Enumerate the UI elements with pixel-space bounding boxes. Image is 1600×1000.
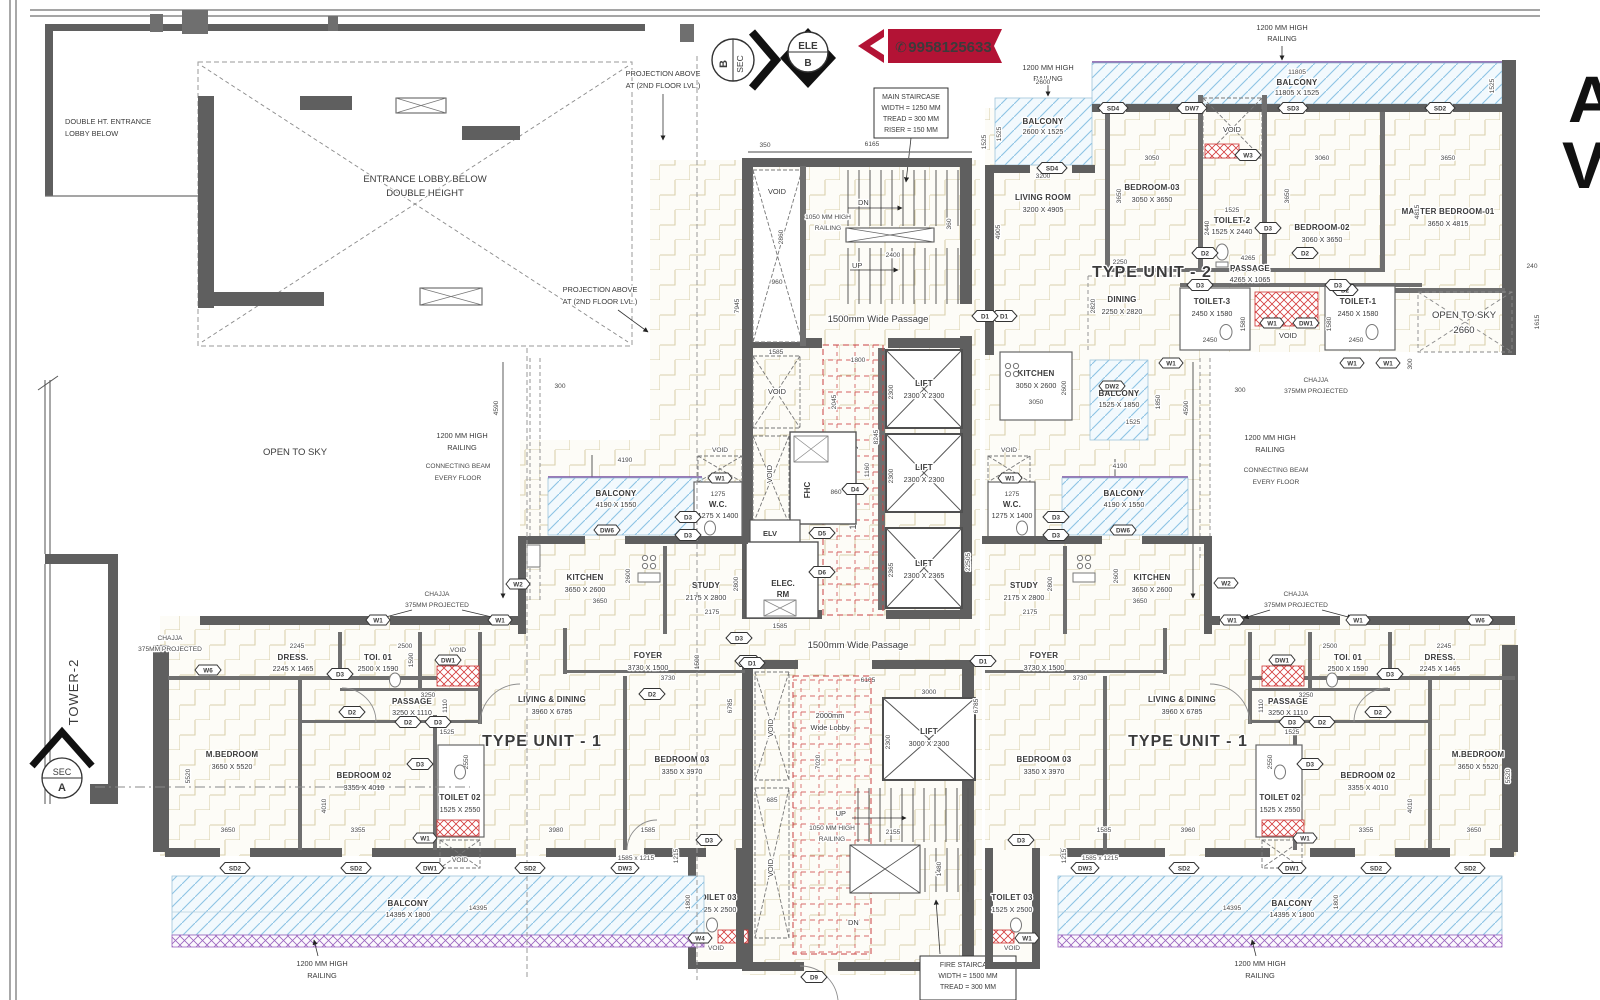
double-ht-label-2: LOBBY BELOW	[65, 129, 118, 138]
svg-text:1200 MM HIGH: 1200 MM HIGH	[436, 431, 487, 440]
svg-text:2660: 2660	[1453, 325, 1474, 336]
svg-text:2175 X 2800: 2175 X 2800	[1004, 593, 1045, 602]
svg-text:14395 X 1800: 14395 X 1800	[386, 910, 431, 919]
svg-text:SEC: SEC	[53, 767, 72, 777]
svg-text:VOID: VOID	[768, 387, 786, 396]
elevation-marker-b: ELE B	[780, 28, 836, 88]
svg-text:3650: 3650	[1441, 155, 1456, 162]
svg-text:DW6: DW6	[1116, 527, 1130, 534]
double-ht-label-1: DOUBLE HT. ENTRANCE	[65, 117, 151, 126]
svg-text:2600: 2600	[625, 568, 632, 583]
svg-text:D5: D5	[818, 530, 827, 537]
svg-text:1525: 1525	[996, 126, 1003, 141]
svg-text:3050 X 2600: 3050 X 2600	[1016, 381, 1057, 390]
svg-text:22505: 22505	[965, 553, 972, 572]
elec-rm-label-1: ELEC.	[771, 579, 795, 588]
svg-text:5520: 5520	[1505, 768, 1512, 783]
svg-text:D3: D3	[1386, 671, 1395, 678]
svg-text:W6: W6	[203, 667, 213, 674]
svg-text:W2: W2	[513, 581, 523, 588]
svg-text:685: 685	[766, 797, 777, 804]
svg-text:LIFT: LIFT	[915, 559, 933, 568]
passage-top-label: 1500mm Wide Passage	[828, 314, 929, 325]
svg-text:4590: 4590	[1183, 400, 1190, 415]
svg-text:7020: 7020	[815, 754, 822, 769]
svg-text:3960 X 6785: 3960 X 6785	[532, 707, 573, 716]
svg-text:TOI. 01: TOI. 01	[364, 653, 392, 662]
svg-text:1215: 1215	[673, 848, 680, 863]
svg-text:3730: 3730	[1073, 675, 1088, 682]
svg-text:2860: 2860	[778, 229, 785, 244]
svg-text:W1: W1	[373, 617, 383, 624]
svg-text:1050 MM HIGH: 1050 MM HIGH	[805, 214, 851, 221]
svg-text:DINING: DINING	[1107, 295, 1136, 304]
svg-text:3355: 3355	[1359, 827, 1374, 834]
svg-text:VOID: VOID	[766, 859, 775, 877]
svg-text:2440: 2440	[1204, 220, 1211, 235]
svg-text:375MM PROJECTED: 375MM PROJECTED	[405, 602, 469, 609]
svg-text:SD4: SD4	[1107, 105, 1120, 112]
svg-text:3650: 3650	[1133, 598, 1148, 605]
svg-text:RAILING: RAILING	[815, 225, 841, 232]
svg-text:3650 X 5520: 3650 X 5520	[1458, 762, 1499, 771]
svg-text:4905: 4905	[995, 224, 1002, 239]
svg-text:1585: 1585	[769, 349, 784, 356]
svg-text:2245: 2245	[290, 643, 305, 650]
tower2-label: TOWER-2	[66, 659, 81, 726]
svg-text:TOILET 03: TOILET 03	[991, 893, 1033, 902]
open-to-sky-right: OPEN TO SKY	[1432, 310, 1497, 321]
svg-text:1585: 1585	[641, 827, 656, 834]
svg-text:3650: 3650	[221, 827, 236, 834]
svg-text:3650 X 4815: 3650 X 4815	[1428, 219, 1469, 228]
watermark-letter-v: V	[1562, 128, 1600, 202]
svg-text:3355 X 4010: 3355 X 4010	[1348, 783, 1389, 792]
svg-text:VOID: VOID	[450, 647, 466, 654]
svg-text:2245: 2245	[1437, 643, 1452, 650]
svg-text:5520: 5520	[185, 768, 192, 783]
svg-text:SD2: SD2	[1370, 865, 1383, 872]
svg-text:BEDROOM-03: BEDROOM-03	[1124, 183, 1180, 192]
svg-text:LIVING & DINING: LIVING & DINING	[1148, 695, 1216, 704]
svg-text:3650: 3650	[1284, 188, 1291, 203]
svg-text:2300: 2300	[885, 734, 892, 749]
svg-text:3730: 3730	[661, 675, 676, 682]
svg-text:W1: W1	[1300, 835, 1310, 842]
svg-text:8245: 8245	[873, 429, 880, 444]
svg-text:3355: 3355	[351, 827, 366, 834]
svg-text:D2: D2	[1201, 250, 1210, 257]
svg-text:VOID: VOID	[1279, 331, 1297, 340]
svg-text:PROJECTION ABOVE: PROJECTION ABOVE	[563, 285, 638, 294]
svg-text:VOID: VOID	[712, 447, 728, 454]
svg-text:1215: 1215	[1061, 848, 1068, 863]
section-marker-b: B SEC	[712, 32, 776, 88]
svg-text:W2: W2	[1221, 580, 1231, 587]
svg-text:3250 X 1110: 3250 X 1110	[1268, 708, 1308, 717]
svg-text:375MM PROJECTED: 375MM PROJECTED	[138, 646, 202, 653]
svg-text:D1: D1	[979, 658, 988, 665]
svg-text:3050: 3050	[1145, 155, 1160, 162]
svg-text:1275: 1275	[711, 491, 726, 498]
svg-text:W1: W1	[1166, 360, 1176, 367]
svg-text:D3: D3	[1052, 514, 1061, 521]
svg-text:BEDROOM 02: BEDROOM 02	[337, 771, 392, 780]
svg-text:2245 X 1465: 2245 X 1465	[1420, 664, 1461, 673]
svg-text:3050: 3050	[1029, 399, 1044, 406]
svg-text:2400: 2400	[886, 252, 901, 259]
svg-text:W1: W1	[495, 617, 505, 624]
section-marker-a: SEC A	[32, 732, 92, 798]
svg-text:4265 X 1065: 4265 X 1065	[1230, 275, 1271, 284]
svg-text:D3: D3	[1334, 282, 1343, 289]
svg-text:BEDROOM 03: BEDROOM 03	[1017, 755, 1072, 764]
svg-text:TREAD = 300 MM: TREAD = 300 MM	[883, 116, 939, 123]
svg-text:LIFT: LIFT	[915, 463, 933, 472]
svg-text:1580: 1580	[1240, 316, 1247, 331]
svg-text:1200 MM HIGH: 1200 MM HIGH	[1244, 433, 1295, 442]
svg-text:FOYER: FOYER	[1030, 651, 1059, 660]
type-unit-2-label: TYPE UNIT - 2	[1092, 264, 1212, 281]
svg-text:BALCONY: BALCONY	[1023, 117, 1064, 126]
svg-text:DW1: DW1	[1285, 865, 1299, 872]
svg-text:BALCONY: BALCONY	[1277, 78, 1318, 87]
svg-text:W1: W1	[1005, 475, 1015, 482]
svg-text:RISER = 150 MM: RISER = 150 MM	[884, 127, 938, 134]
svg-text:M.BEDROOM: M.BEDROOM	[206, 750, 259, 759]
svg-text:2300 X 2300: 2300 X 2300	[904, 475, 945, 484]
svg-text:STUDY: STUDY	[692, 581, 721, 590]
svg-text:D2: D2	[1318, 719, 1327, 726]
svg-text:TOILET-3: TOILET-3	[1194, 297, 1231, 306]
svg-text:DRESS.: DRESS.	[1425, 653, 1456, 662]
svg-text:TOILET-2: TOILET-2	[1214, 216, 1251, 225]
elec-rm-label-2: RM	[777, 590, 790, 599]
phone-icon: ✆	[895, 39, 907, 55]
svg-text:6785: 6785	[727, 698, 734, 713]
svg-text:W1: W1	[1353, 617, 1363, 624]
svg-text:350: 350	[759, 142, 770, 149]
svg-text:3960: 3960	[1181, 827, 1196, 834]
svg-text:3980: 3980	[549, 827, 564, 834]
svg-text:STUDY: STUDY	[1010, 581, 1039, 590]
svg-text:3960 X 6785: 3960 X 6785	[1162, 707, 1203, 716]
svg-text:1525 X 2440: 1525 X 2440	[1212, 227, 1253, 236]
svg-text:2500: 2500	[1323, 643, 1338, 650]
svg-text:3060: 3060	[1315, 155, 1330, 162]
svg-text:TOI. 01: TOI. 01	[1334, 653, 1362, 662]
svg-text:D2: D2	[1301, 250, 1310, 257]
svg-text:2500 X 1590: 2500 X 1590	[358, 664, 399, 673]
svg-text:D3: D3	[705, 837, 714, 844]
svg-text:1525: 1525	[440, 729, 455, 736]
svg-text:1525 X 1850: 1525 X 1850	[1099, 400, 1140, 409]
svg-text:DW2: DW2	[1105, 383, 1119, 390]
svg-text:W1: W1	[420, 835, 430, 842]
svg-text:RAILING: RAILING	[307, 971, 337, 980]
svg-text:D2: D2	[404, 719, 413, 726]
svg-text:1275 X 1400: 1275 X 1400	[992, 511, 1033, 520]
svg-text:A: A	[58, 782, 66, 794]
svg-text:D2: D2	[1374, 709, 1383, 716]
svg-text:1800: 1800	[851, 357, 866, 364]
svg-text:860: 860	[830, 489, 841, 496]
balcony-strip-left: BALCONY 14395 X 1800 14395 1800 1200 MM …	[172, 876, 704, 980]
svg-text:2500 X 1590: 2500 X 1590	[1328, 664, 1369, 673]
svg-text:3350 X 3970: 3350 X 3970	[662, 767, 703, 776]
projection-note-2: PROJECTION ABOVE AT (2ND FLOOR LVL.)	[563, 285, 648, 332]
svg-text:2600: 2600	[1113, 568, 1120, 583]
lift-4: LIFT 3000 X 2300 3000 2300	[883, 689, 975, 780]
svg-text:375MM PROJECTED: 375MM PROJECTED	[1264, 602, 1328, 609]
svg-text:SD2: SD2	[524, 865, 537, 872]
elv-label: ELV	[763, 529, 777, 538]
svg-text:BEDROOM 03: BEDROOM 03	[655, 755, 710, 764]
svg-text:VOID: VOID	[452, 857, 468, 864]
svg-text:AT (2ND FLOOR LVL.): AT (2ND FLOOR LVL.)	[563, 297, 638, 306]
svg-text:BEDROOM 02: BEDROOM 02	[1341, 771, 1396, 780]
svg-text:VOID: VOID	[708, 945, 724, 952]
svg-text:4190: 4190	[1113, 463, 1128, 470]
svg-text:1525: 1525	[1225, 207, 1240, 214]
svg-text:RAILING: RAILING	[1267, 34, 1297, 43]
svg-text:W1: W1	[1022, 935, 1032, 942]
svg-text:D1: D1	[748, 660, 757, 667]
svg-text:1525 X 2500: 1525 X 2500	[992, 905, 1033, 914]
entrance-lobby-label-2: DOUBLE HEIGHT	[386, 188, 464, 199]
svg-text:SD2: SD2	[1178, 865, 1191, 872]
svg-text:W3: W3	[1243, 152, 1253, 159]
svg-text:TOILET-1: TOILET-1	[1340, 297, 1377, 306]
svg-text:SD2: SD2	[1464, 865, 1477, 872]
svg-text:2300 X 2300: 2300 X 2300	[904, 391, 945, 400]
svg-text:4590: 4590	[493, 400, 500, 415]
svg-text:2300: 2300	[888, 468, 895, 483]
ele-label: ELE	[798, 41, 818, 52]
svg-text:BALCONY: BALCONY	[1272, 899, 1313, 908]
svg-text:AT (2ND FLOOR LVL.): AT (2ND FLOOR LVL.)	[626, 81, 701, 90]
svg-text:D3: D3	[1306, 761, 1315, 768]
svg-text:VOID: VOID	[766, 719, 775, 737]
type-unit-1-right-label: TYPE UNIT - 1	[1128, 733, 1248, 750]
svg-text:D3: D3	[434, 719, 443, 726]
svg-text:2450 X 1580: 2450 X 1580	[1338, 309, 1379, 318]
svg-text:CONNECTING BEAM: CONNECTING BEAM	[426, 463, 491, 470]
svg-text:1525: 1525	[1489, 78, 1496, 93]
lobby-2000-label-2: Wide Lobby	[810, 723, 849, 732]
core-void-top: VOID	[768, 187, 786, 196]
svg-text:1525 X 2550: 1525 X 2550	[440, 805, 481, 814]
balcony-strip-right: BALCONY 14395 X 1800 14395 1800 1200 MM …	[1058, 876, 1502, 980]
svg-text:3000 X 2300: 3000 X 2300	[909, 739, 950, 748]
svg-text:2155: 2155	[886, 829, 901, 836]
svg-text:W.C.: W.C.	[1003, 500, 1021, 509]
lift-2: LIFT 2300 X 2300 2300	[886, 434, 962, 512]
svg-text:2600 X 1525: 2600 X 1525	[1023, 127, 1064, 136]
svg-text:EVERY FLOOR: EVERY FLOOR	[1253, 479, 1300, 486]
svg-text:SD4: SD4	[1046, 165, 1059, 172]
svg-text:SD3: SD3	[1287, 105, 1300, 112]
svg-text:4265: 4265	[1241, 255, 1256, 262]
svg-text:DW3: DW3	[1078, 865, 1092, 872]
svg-text:360: 360	[946, 218, 953, 229]
svg-text:VOID: VOID	[1004, 945, 1020, 952]
svg-text:1050 MM HIGH: 1050 MM HIGH	[809, 825, 855, 832]
svg-text:CHAJJA: CHAJJA	[1284, 591, 1310, 598]
svg-text:TOILET 02: TOILET 02	[439, 793, 481, 802]
svg-text:2175: 2175	[705, 609, 720, 616]
svg-text:2250 X 2820: 2250 X 2820	[1102, 307, 1143, 316]
svg-text:D3: D3	[1264, 225, 1273, 232]
railing-note-topright: 1200 MM HIGH RAILING	[1256, 23, 1307, 60]
svg-text:D6: D6	[818, 569, 827, 576]
svg-text:LIFT: LIFT	[920, 727, 938, 736]
svg-text:DW1: DW1	[441, 657, 455, 664]
svg-text:BALCONY: BALCONY	[596, 489, 637, 498]
svg-text:3650: 3650	[1467, 827, 1482, 834]
svg-text:D3: D3	[735, 635, 744, 642]
svg-text:14395: 14395	[1223, 905, 1242, 912]
svg-text:D4: D4	[851, 486, 860, 493]
svg-text:RAILING: RAILING	[447, 443, 477, 452]
svg-text:KITCHEN: KITCHEN	[1134, 573, 1171, 582]
svg-text:3250: 3250	[1299, 692, 1314, 699]
section-b-word: SEC	[735, 55, 745, 72]
svg-text:KITCHEN: KITCHEN	[567, 573, 604, 582]
svg-text:EVERY FLOOR: EVERY FLOOR	[435, 475, 482, 482]
svg-text:1525: 1525	[1285, 729, 1300, 736]
svg-text:RAILING: RAILING	[819, 836, 845, 843]
svg-text:2045: 2045	[831, 394, 838, 409]
svg-text:2245 X 1465: 2245 X 1465	[273, 664, 314, 673]
lift-1: LIFT 2300 X 2300 2300	[886, 350, 962, 428]
svg-text:DRESS.: DRESS.	[278, 653, 309, 662]
svg-text:1585 x 1215: 1585 x 1215	[1082, 855, 1119, 862]
svg-text:300: 300	[1234, 387, 1245, 394]
svg-text:14395: 14395	[469, 905, 488, 912]
svg-text:1615: 1615	[1534, 314, 1541, 329]
svg-text:SD2: SD2	[350, 865, 363, 872]
svg-text:2300: 2300	[888, 384, 895, 399]
svg-text:D9: D9	[810, 974, 819, 981]
svg-text:D3: D3	[416, 761, 425, 768]
svg-text:D3: D3	[336, 671, 345, 678]
svg-text:3000: 3000	[922, 689, 937, 696]
floor-plan-drawing: DOUBLE HT. ENTRANCE LOBBY BELOW ENTRANCE…	[0, 0, 1600, 1000]
svg-text:DW7: DW7	[1185, 105, 1199, 112]
svg-text:W6: W6	[1475, 617, 1485, 624]
svg-text:1200 MM HIGH: 1200 MM HIGH	[296, 959, 347, 968]
svg-text:3730 X 1500: 3730 X 1500	[1024, 663, 1065, 672]
entrance-lobby-label-1: ENTRANCE LOBBY BELOW	[363, 174, 486, 185]
svg-text:DW3: DW3	[618, 865, 632, 872]
svg-text:BALCONY: BALCONY	[1104, 489, 1145, 498]
svg-text:1800: 1800	[685, 894, 692, 909]
svg-text:D1: D1	[1000, 313, 1009, 320]
svg-text:2250: 2250	[1113, 259, 1128, 266]
stair-up: UP	[852, 261, 862, 270]
svg-text:W1: W1	[1267, 320, 1277, 327]
svg-text:3350 X 3970: 3350 X 3970	[1024, 767, 1065, 776]
svg-text:7945: 7945	[734, 298, 741, 313]
svg-text:TOILET 02: TOILET 02	[1259, 793, 1301, 802]
svg-text:1480: 1480	[936, 861, 943, 876]
lobby-2000-label-1: 2000mm	[816, 711, 845, 720]
lift-3: LIFT 2300 X 2365 2365	[886, 528, 962, 608]
svg-text:CONNECTING BEAM: CONNECTING BEAM	[1244, 467, 1309, 474]
svg-text:1585: 1585	[1097, 827, 1112, 834]
ele-b: B	[804, 58, 811, 69]
stair-dn: DN	[858, 198, 869, 207]
svg-text:D3: D3	[1196, 282, 1205, 289]
svg-text:W1: W1	[1227, 617, 1237, 624]
passage-bottom-label: 1500mm Wide Passage	[808, 640, 909, 651]
svg-text:240: 240	[1526, 263, 1537, 270]
svg-text:1160: 1160	[864, 463, 871, 478]
svg-text:300: 300	[1407, 358, 1414, 369]
svg-text:960: 960	[771, 279, 782, 286]
svg-text:DW1: DW1	[423, 865, 437, 872]
svg-text:VOID: VOID	[1001, 447, 1017, 454]
open-to-sky-left: OPEN TO SKY	[263, 447, 328, 458]
svg-text:3355 X 4010: 3355 X 4010	[344, 783, 385, 792]
svg-text:PASSAGE: PASSAGE	[1230, 264, 1270, 273]
svg-text:1275 X 1400: 1275 X 1400	[698, 511, 739, 520]
svg-text:3650: 3650	[1116, 188, 1123, 203]
svg-text:3650 X 5520: 3650 X 5520	[212, 762, 253, 771]
svg-text:DN: DN	[848, 918, 859, 927]
svg-text:2800: 2800	[1047, 576, 1054, 591]
svg-text:2450: 2450	[1203, 337, 1218, 344]
svg-text:4190 X 1550: 4190 X 1550	[596, 500, 637, 509]
svg-text:1590: 1590	[408, 652, 415, 667]
svg-text:2175: 2175	[1023, 609, 1038, 616]
svg-text:3730 X 1500: 3730 X 1500	[628, 663, 669, 672]
svg-text:11805: 11805	[1288, 69, 1306, 76]
svg-text:D2: D2	[348, 709, 357, 716]
svg-text:UP: UP	[836, 809, 846, 818]
svg-text:1525: 1525	[1126, 419, 1141, 426]
svg-text:CHAJJA: CHAJJA	[158, 635, 184, 642]
svg-text:4010: 4010	[321, 798, 328, 813]
svg-text:6165: 6165	[865, 141, 880, 148]
svg-text:1585: 1585	[773, 623, 788, 630]
svg-text:1850: 1850	[1155, 394, 1162, 409]
svg-text:VOID: VOID	[765, 465, 774, 483]
svg-text:2175 X 2800: 2175 X 2800	[686, 593, 727, 602]
svg-text:300: 300	[554, 383, 565, 390]
svg-text:4010: 4010	[1407, 798, 1414, 813]
svg-text:LIVING & DINING: LIVING & DINING	[518, 695, 586, 704]
svg-text:1585 x 1215: 1585 x 1215	[618, 855, 655, 862]
fhc-label: FHC	[803, 482, 812, 499]
svg-text:3200 X 4905: 3200 X 4905	[1023, 205, 1064, 214]
svg-text:2365: 2365	[888, 562, 895, 577]
svg-text:D3: D3	[684, 532, 693, 539]
svg-text:MAIN STAIRCASE: MAIN STAIRCASE	[882, 94, 940, 101]
svg-text:2450 X 1580: 2450 X 1580	[1192, 309, 1233, 318]
svg-text:2820: 2820	[1090, 298, 1097, 313]
svg-text:1200 MM HIGH: 1200 MM HIGH	[1022, 63, 1073, 72]
svg-text:2300 X 2365: 2300 X 2365	[904, 571, 945, 580]
phone-ribbon: ✆ 9958125633	[858, 29, 1002, 63]
svg-text:BEDROOM-02: BEDROOM-02	[1294, 223, 1350, 232]
watermark-letter-a: A	[1568, 62, 1600, 136]
svg-text:3050 X 3650: 3050 X 3650	[1132, 195, 1173, 204]
svg-text:1580: 1580	[1326, 316, 1333, 331]
svg-text:2800: 2800	[733, 576, 740, 591]
svg-text:DW1: DW1	[1299, 320, 1313, 327]
